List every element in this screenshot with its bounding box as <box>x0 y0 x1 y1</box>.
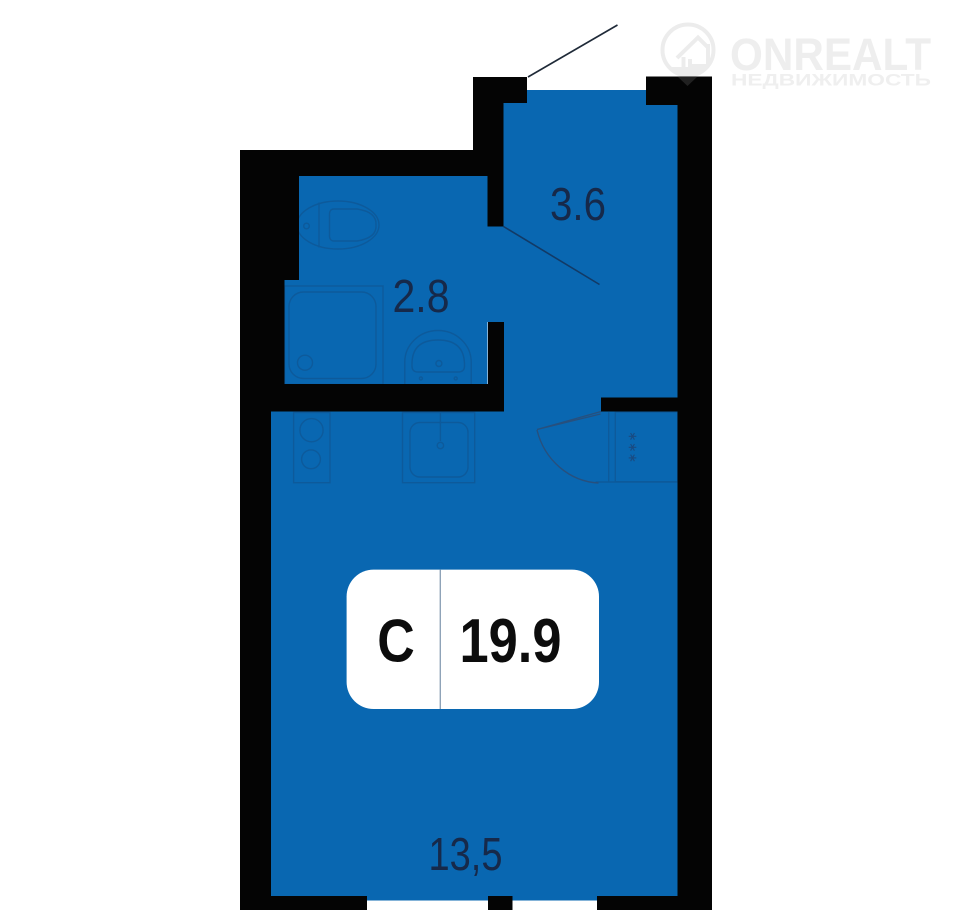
svg-text:13,5: 13,5 <box>429 828 503 880</box>
svg-text:19.9: 19.9 <box>460 607 562 676</box>
svg-text:3.6: 3.6 <box>550 178 606 230</box>
svg-text:НЕДВИЖИМОСТЬ: НЕДВИЖИМОСТЬ <box>731 72 931 90</box>
svg-text:С: С <box>377 608 415 675</box>
svg-text:2.8: 2.8 <box>393 270 450 322</box>
